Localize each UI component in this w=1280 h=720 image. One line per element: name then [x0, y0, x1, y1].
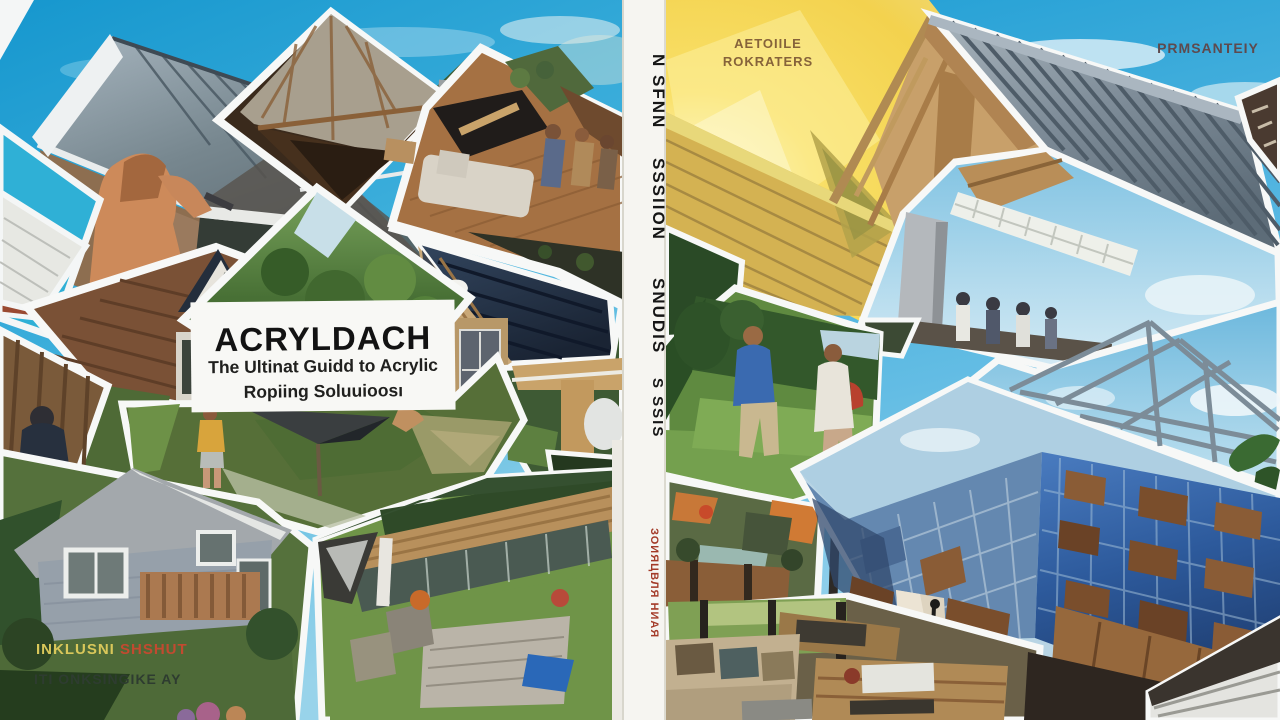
- svg-text:SSSIION: SSSIION: [649, 158, 668, 241]
- svg-text:Ropiing Soluuioosı: Ropiing Soluuioosı: [244, 380, 404, 402]
- svg-text:ITI ONKSINGIKE AY: ITI ONKSINGIKE AY: [34, 671, 181, 687]
- svg-text:PRMSANTEIY: PRMSANTEIY: [1157, 40, 1259, 56]
- svg-text:ЗОИЯЦВЛЯ НИАЯ: ЗОИЯЦВЛЯ НИАЯ: [648, 528, 660, 638]
- svg-text:AETOIILE: AETOIILE: [734, 36, 802, 51]
- svg-text:SNUDIS: SNUDIS: [649, 278, 668, 354]
- svg-text:ACRYLDACH: ACRYLDACH: [214, 319, 431, 358]
- svg-text:N SFNN: N SFNN: [649, 54, 668, 129]
- svg-text:S SSIS: S SSIS: [649, 378, 666, 438]
- svg-text:The Ultinat Guidd to Acrylic: The Ultinat Guidd to Acrylic: [208, 355, 438, 377]
- svg-text:ROKRATERS: ROKRATERS: [723, 54, 813, 69]
- svg-text:INKLUSNI SHSHUT: INKLUSNI SHSHUT: [36, 641, 188, 658]
